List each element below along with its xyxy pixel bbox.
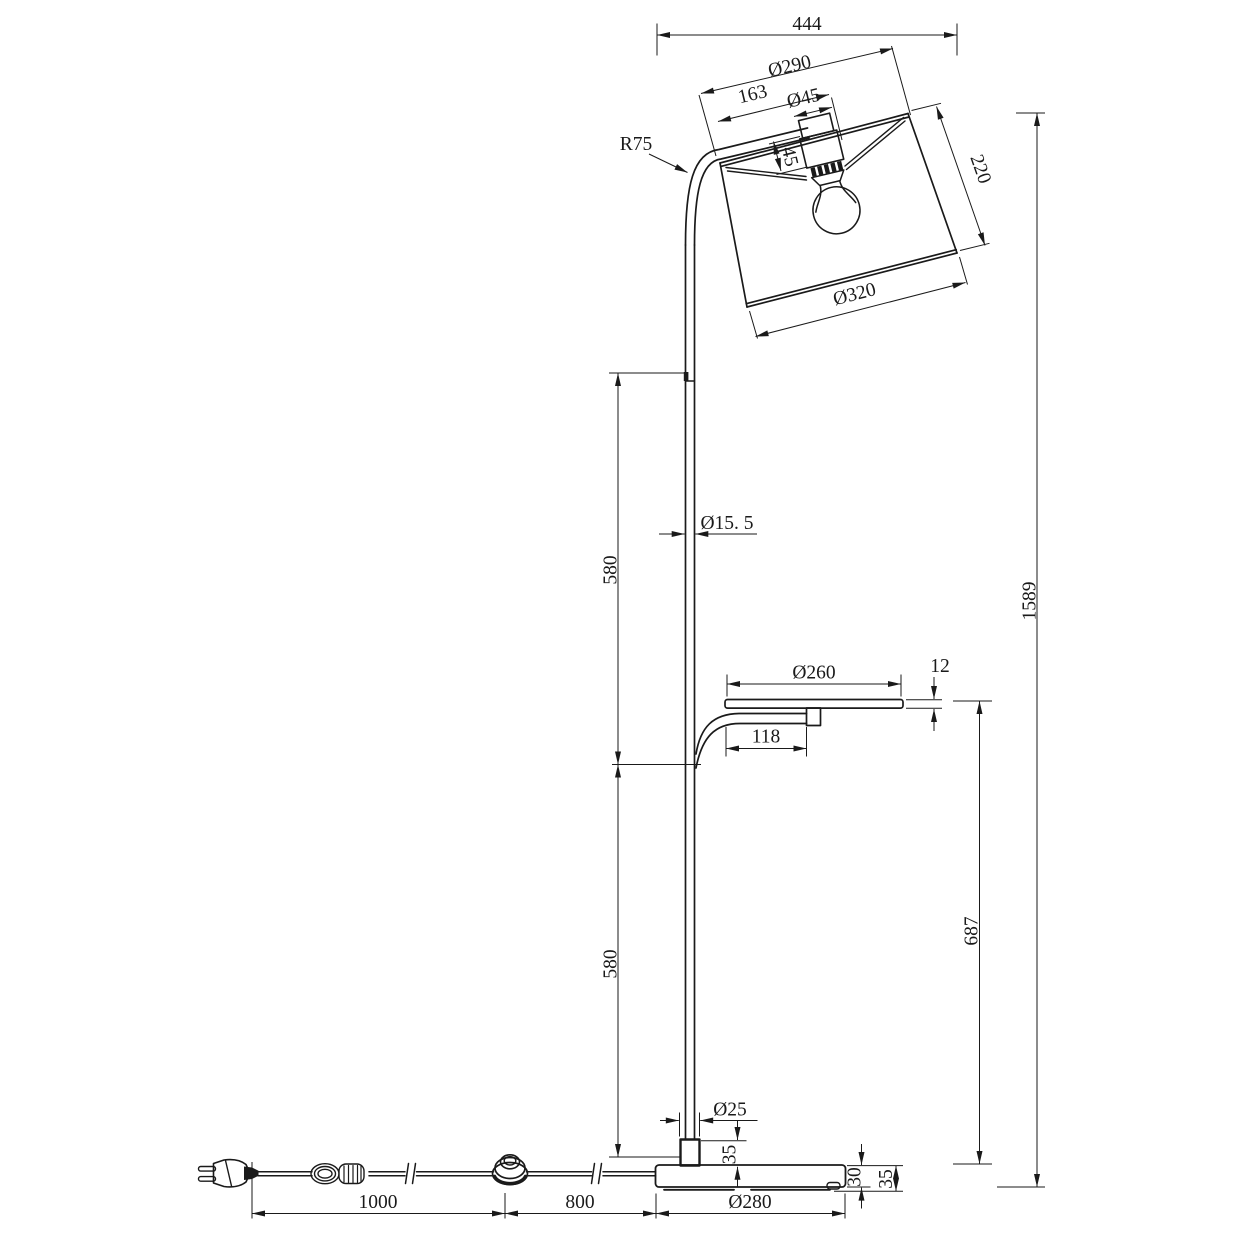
dim-tray-arm-length: 118: [726, 727, 807, 757]
dim-pole-diameter: Ø15. 5: [659, 513, 757, 534]
dim-label-pole-socket-height: 35: [720, 1145, 741, 1165]
base-foot-pad: [827, 1183, 840, 1190]
eu-plug: [199, 1160, 259, 1187]
dim-label-tray-diameter: Ø260: [792, 663, 835, 684]
dim-tray-thickness: 12: [906, 656, 950, 731]
dim-label-cord-plug-to-switch: 1000: [359, 1192, 398, 1213]
tray-shelf: [696, 700, 903, 769]
power-cord: [199, 1155, 656, 1187]
dim-label-pole-socket-diameter: Ø25: [713, 1100, 747, 1121]
plug-boot: [244, 1167, 259, 1181]
dim-tray-height: 687: [953, 701, 992, 1164]
dim-pole-lower-section: 580: [601, 765, 682, 1158]
dim-label-socket-cap-height: 45: [777, 145, 802, 169]
dim-label-base-total-height: 35: [876, 1169, 897, 1189]
cord-coil: [311, 1164, 364, 1184]
lamp-socket: [791, 111, 865, 238]
dim-label-tray-arm-length: 118: [752, 727, 781, 748]
dim-arm-bend-radius: R75: [620, 134, 688, 173]
dim-pole-socket-diameter: Ø25: [660, 1100, 758, 1137]
dim-label-pole-diameter: Ø15. 5: [700, 513, 753, 534]
lamp-shade: [720, 114, 957, 308]
dim-label-shade-fitter-width: 163: [736, 81, 769, 108]
foot-switch: [493, 1155, 528, 1185]
dim-socket-cap-diameter: Ø45: [785, 85, 832, 117]
dim-label-base-thickness: 30: [845, 1167, 866, 1187]
dim-shade-height: 220: [912, 103, 995, 250]
technical-drawing-floor-lamp: 444 Ø290 163 Ø45 45 220 Ø320: [0, 0, 1240, 1240]
tray-plate: [725, 700, 903, 709]
dim-shade-fitter-width: 163: [718, 81, 842, 140]
dim-label-cord-switch-to-base: 800: [565, 1192, 594, 1213]
dim-label-tray-height: 687: [962, 916, 983, 946]
dim-base-thickness: 30: [845, 1144, 871, 1209]
dim-overall-width: 444: [657, 14, 957, 56]
dim-pole-socket-height: 35: [701, 1120, 747, 1187]
dim-label-tray-thickness: 12: [930, 656, 950, 677]
dim-label-arm-bend-radius: R75: [620, 134, 653, 155]
lamp-base: [656, 1140, 846, 1190]
lamp-pole: [684, 128, 809, 1139]
dim-overall-height: 1589: [997, 113, 1045, 1187]
dim-label-pole-lower-section: 580: [601, 949, 622, 978]
dim-label-shade-height: 220: [965, 152, 994, 187]
base-plate: [656, 1165, 846, 1187]
dim-label-pole-upper-section: 580: [601, 555, 622, 584]
tray-bracket: [807, 708, 821, 726]
dim-label-overall-height: 1589: [1020, 582, 1041, 621]
dim-label-socket-cap-diameter: Ø45: [785, 85, 823, 113]
dim-label-base-diameter: Ø280: [728, 1192, 771, 1213]
dim-label-shade-top-diameter: Ø290: [766, 51, 813, 82]
light-bulb: [807, 178, 865, 239]
dim-label-overall-width: 444: [792, 14, 822, 35]
pole-socket-sleeve: [681, 1140, 700, 1166]
dim-tray-diameter: Ø260: [727, 663, 901, 697]
